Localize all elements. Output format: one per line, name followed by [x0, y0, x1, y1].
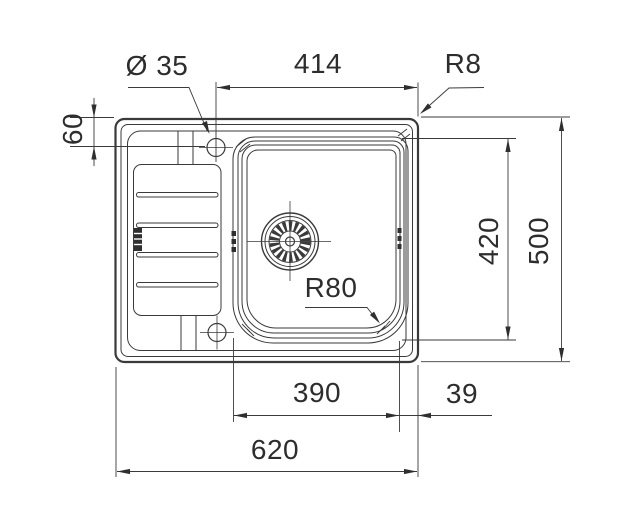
sink-rim-line	[121, 125, 413, 357]
leader-bowl-corner-radius	[305, 308, 378, 322]
dim-label-bowl-corner-radius: R80	[305, 274, 358, 302]
drainboard-rib	[137, 223, 219, 228]
dim-label-bowl-width: 390	[293, 379, 341, 407]
drain-strainer	[247, 201, 331, 281]
dim-label-bowl-length: 420	[475, 217, 503, 265]
bowl-wall-line-3	[242, 145, 400, 333]
dim-label-tap-hole-diameter: Ø 35	[126, 52, 189, 80]
dim-label-inner-top-width: 414	[294, 50, 342, 78]
sink-pressed-area-line	[128, 131, 407, 351]
sink-bowl	[233, 137, 408, 343]
dim-label-edge-gap: 39	[446, 380, 478, 408]
tap-hole-bottom	[200, 316, 234, 350]
drainboard-panel	[134, 165, 222, 316]
sink-rim-outline	[116, 119, 419, 362]
wall-texture-marks	[134, 228, 402, 252]
leader-rim-corner-radius	[422, 88, 485, 113]
sink-outer-edge	[116, 119, 419, 362]
bowl-outer-wall	[233, 137, 408, 343]
bowl-wall-line-2	[238, 141, 404, 338]
dim-label-tap-hole-offset: 60	[59, 113, 87, 145]
dim-label-rim-corner-radius: R8	[445, 50, 482, 78]
drainboard-rib	[137, 283, 219, 288]
dim-label-overall-depth: 500	[525, 217, 553, 265]
bowl-left-wall-marks	[232, 231, 237, 252]
bowl-corner-hatching	[236, 129, 410, 336]
bowl-right-wall-marks	[398, 228, 402, 249]
drainboard	[134, 132, 222, 351]
drainboard-rib	[137, 253, 219, 258]
drainboard-rib	[137, 193, 219, 198]
technical-drawing-canvas: Ø 35 414 R8 60 420 500 R80 390 39 620	[0, 0, 641, 529]
dim-label-overall-width: 620	[251, 436, 299, 464]
